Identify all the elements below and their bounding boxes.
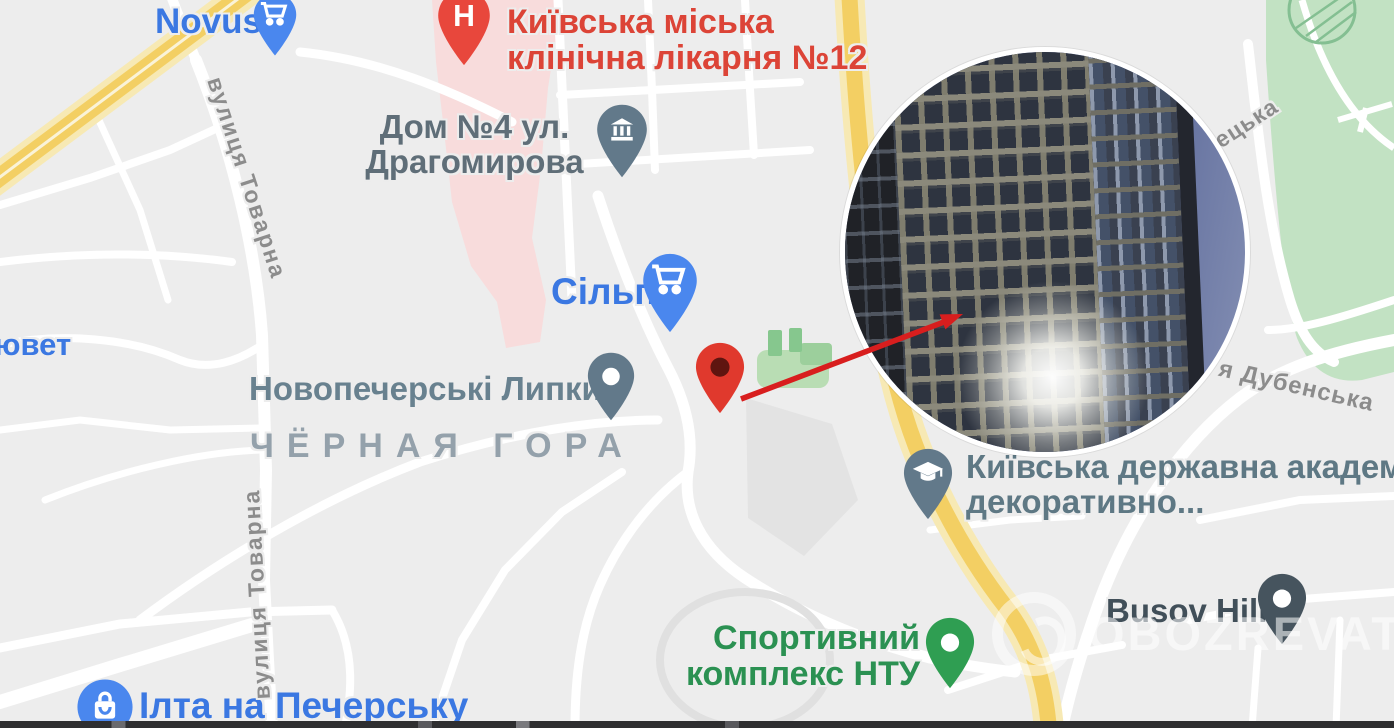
- hospital-line2: клінічна лікарня №12: [507, 39, 867, 77]
- dot-icon: [602, 368, 620, 386]
- marker-hole: [710, 358, 729, 377]
- poi-label-ilta[interactable]: Ілта на Печерську: [139, 686, 468, 725]
- academy-line2: декоративно...: [966, 483, 1204, 520]
- poi-label-lypky[interactable]: Новопечерські Липки: [249, 372, 602, 407]
- dot-icon: [1273, 590, 1291, 608]
- map-screenshot: Novus Київська міська клінічна лікарня №…: [0, 0, 1394, 728]
- dot-icon: [941, 634, 959, 652]
- academy-pin[interactable]: [902, 447, 954, 521]
- area-label-chernaya-gora: ЧЁРНАЯ ГОРА: [250, 428, 635, 464]
- poi-label-iuvet[interactable]: ювет: [0, 329, 71, 362]
- destination-marker-pin[interactable]: [694, 341, 746, 415]
- novus-pin[interactable]: [252, 0, 298, 57]
- dom-line1: Дом №4 ул.: [380, 108, 570, 145]
- dom-pin[interactable]: [595, 103, 649, 179]
- sport-line1: Спортивний: [713, 619, 920, 657]
- watermark-text: OBOZREVATEL: [1088, 606, 1394, 661]
- poi-label-dom[interactable]: Дом №4 ул. Драгомирова: [352, 110, 597, 180]
- dom-line2: Драгомирова: [365, 143, 583, 180]
- obozrevatel-logo-icon: [992, 592, 1076, 676]
- building-photo-inset: [840, 47, 1250, 457]
- silpo-pin[interactable]: [641, 252, 699, 334]
- hospital-h-icon: H: [453, 0, 475, 33]
- sport-line2: комплекс НТУ: [686, 655, 920, 693]
- poi-label-sport[interactable]: Спортивний комплекс НТУ: [640, 620, 920, 692]
- sport-pin[interactable]: [924, 616, 976, 690]
- hospital-pin[interactable]: H: [436, 0, 492, 67]
- bottom-edge-bar: [0, 721, 1394, 728]
- poi-label-novus[interactable]: Novus: [155, 3, 262, 40]
- lypky-pin[interactable]: [586, 351, 636, 422]
- poi-label-academy[interactable]: Київська державна академ декоративно...: [966, 450, 1394, 520]
- hospital-line1: Київська міська: [507, 3, 774, 41]
- poi-label-hospital[interactable]: Київська міська клінічна лікарня №12: [507, 4, 867, 76]
